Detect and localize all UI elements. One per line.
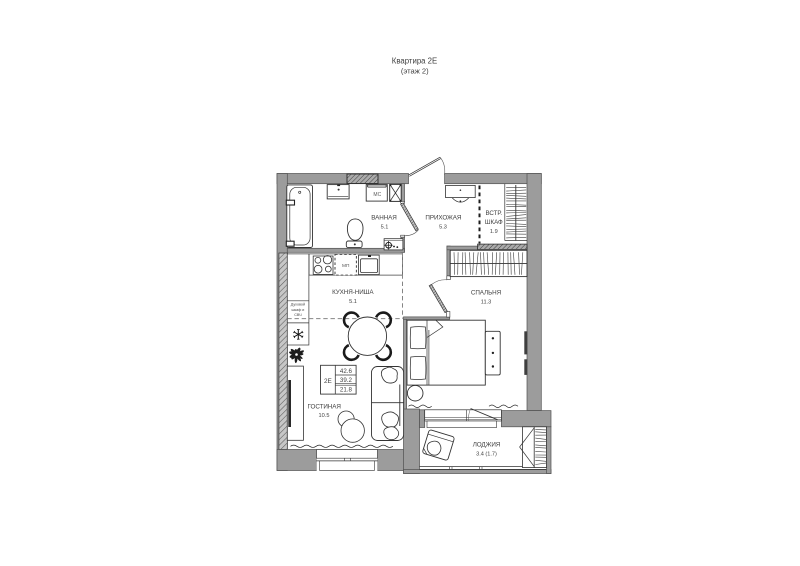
svg-text:МС: МС [373,192,381,198]
svg-text:ВАННАЯ: ВАННАЯ [371,215,397,222]
svg-text:10.5: 10.5 [319,413,330,419]
svg-text:39.2: 39.2 [340,377,353,384]
svg-text:5.1: 5.1 [349,299,357,305]
svg-text:(этаж 2): (этаж 2) [401,67,429,76]
svg-text:3.4 (1.7): 3.4 (1.7) [476,451,497,457]
svg-text:КУХНЯ-НИША: КУХНЯ-НИША [332,289,374,296]
svg-text:ВСТР.: ВСТР. [485,210,502,217]
svg-text:42.6: 42.6 [340,368,353,375]
svg-text:шкаф и: шкаф и [291,308,304,312]
svg-text:СПАЛЬНЯ: СПАЛЬНЯ [471,290,502,297]
svg-text:СВЧ: СВЧ [294,313,302,317]
svg-text:ГОСТИНАЯ: ГОСТИНАЯ [308,403,342,410]
svg-text:Квартира 2Е: Квартира 2Е [392,56,437,65]
svg-text:21.8: 21.8 [340,387,353,394]
svg-text:ЛОДЖИЯ: ЛОДЖИЯ [473,441,501,448]
svg-text:ПРИХОЖАЯ: ПРИХОЖАЯ [425,214,461,221]
svg-text:МП: МП [342,263,350,269]
svg-text:ШКАФ: ШКАФ [485,219,503,226]
svg-text:5.1: 5.1 [381,225,389,231]
svg-text:1.9: 1.9 [490,229,498,235]
svg-text:Духовой: Духовой [291,303,305,307]
svg-text:5.3: 5.3 [439,225,447,231]
svg-text:2Е: 2Е [324,378,332,385]
svg-text:11.3: 11.3 [481,299,491,305]
